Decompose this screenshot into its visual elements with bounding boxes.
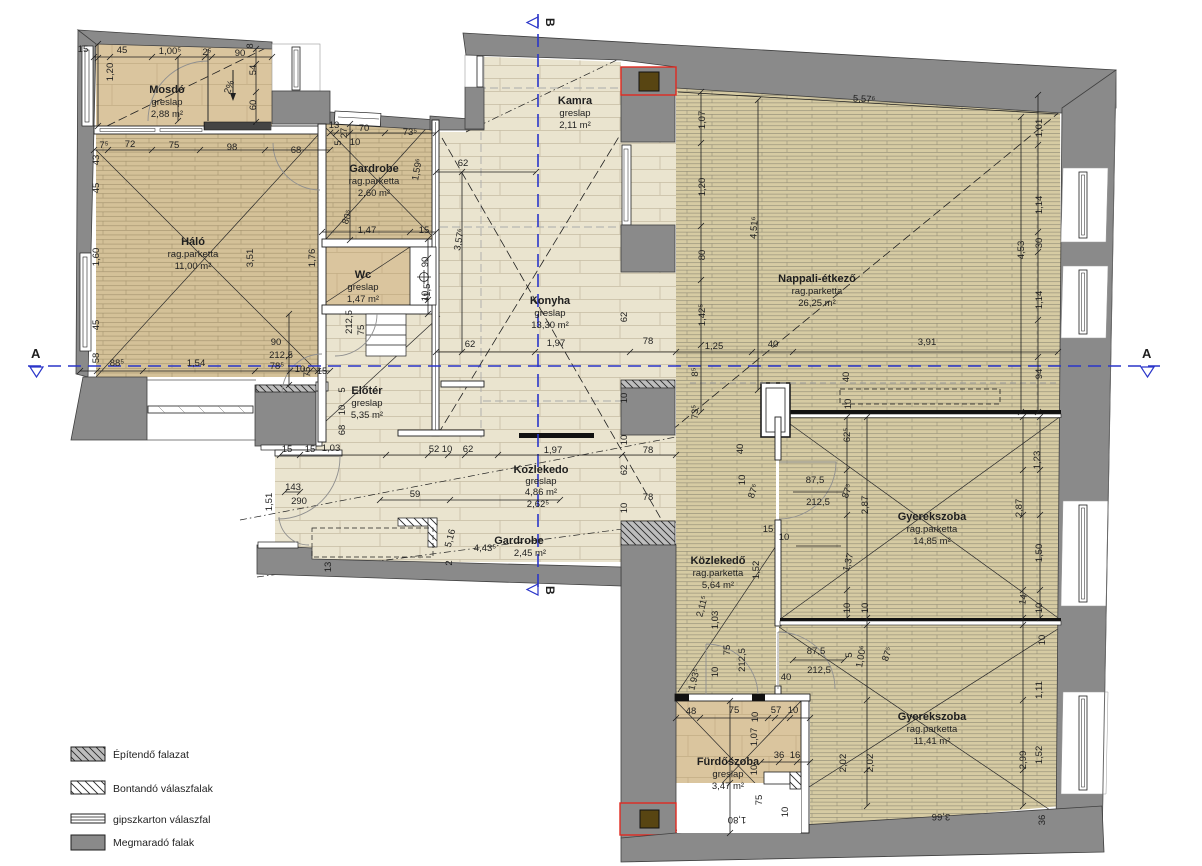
svg-text:3,91: 3,91 (918, 337, 937, 348)
svg-text:70: 70 (359, 123, 370, 134)
svg-text:10: 10 (843, 399, 854, 410)
svg-text:10: 10 (788, 705, 799, 716)
svg-text:Gardrobe: Gardrobe (349, 163, 399, 175)
svg-text:98: 98 (227, 142, 238, 153)
svg-text:Előtér: Előtér (351, 385, 383, 397)
svg-text:15: 15 (419, 225, 430, 236)
svg-text:B: B (543, 586, 557, 595)
svg-text:40: 40 (768, 339, 779, 350)
svg-text:1,51: 1,51 (264, 493, 275, 512)
svg-text:45: 45 (91, 183, 102, 194)
svg-text:Konyha: Konyha (530, 295, 571, 307)
svg-text:87,5: 87,5 (807, 646, 826, 657)
svg-text:62: 62 (458, 158, 469, 169)
svg-text:B: B (543, 18, 557, 27)
svg-text:48: 48 (686, 706, 697, 717)
svg-text:10: 10 (750, 712, 761, 723)
svg-text:rag.parketta: rag.parketta (168, 249, 219, 260)
svg-text:5,64 m²: 5,64 m² (702, 580, 734, 591)
svg-text:1,47 m²: 1,47 m² (347, 294, 379, 305)
svg-text:60: 60 (248, 100, 259, 111)
svg-text:2,02: 2,02 (865, 754, 876, 773)
svg-text:10: 10 (710, 667, 721, 678)
svg-text:2,99: 2,99 (1018, 751, 1029, 770)
svg-text:1,07: 1,07 (697, 111, 708, 130)
svg-text:10: 10 (842, 603, 853, 614)
svg-text:1,25: 1,25 (705, 341, 724, 352)
svg-text:4,43⁵: 4,43⁵ (474, 543, 496, 554)
svg-text:Gyerekszoba: Gyerekszoba (898, 511, 967, 523)
svg-text:212,5: 212,5 (344, 310, 355, 334)
svg-text:1,07: 1,07 (749, 728, 760, 747)
svg-text:2,87: 2,87 (1014, 499, 1025, 518)
svg-text:2,87: 2,87 (860, 496, 871, 515)
svg-text:212,5: 212,5 (807, 665, 831, 676)
svg-text:40: 40 (781, 672, 792, 683)
svg-text:10: 10 (337, 405, 348, 416)
svg-text:1,20: 1,20 (105, 63, 116, 82)
svg-text:1,20: 1,20 (697, 178, 708, 197)
svg-text:5: 5 (844, 652, 855, 657)
svg-text:2⁵: 2⁵ (202, 47, 211, 58)
svg-text:15: 15 (282, 444, 293, 455)
svg-text:4,86 m²: 4,86 m² (525, 487, 557, 498)
svg-text:2: 2 (444, 560, 455, 565)
svg-text:14,85 m²: 14,85 m² (913, 536, 951, 547)
svg-text:2,88 m²: 2,88 m² (151, 109, 183, 120)
svg-text:78: 78 (643, 492, 654, 503)
svg-text:1,80: 1,80 (728, 814, 747, 825)
svg-text:3,47 m²: 3,47 m² (712, 781, 744, 792)
svg-text:75: 75 (356, 325, 367, 336)
svg-text:Bontandó válaszfalak: Bontandó válaszfalak (113, 783, 214, 795)
svg-text:68: 68 (337, 425, 348, 436)
svg-text:15: 15 (763, 524, 774, 535)
svg-text:94: 94 (1034, 369, 1045, 380)
svg-text:36: 36 (774, 750, 785, 761)
svg-text:59: 59 (410, 489, 421, 500)
svg-text:1,14: 1,14 (1034, 196, 1045, 215)
svg-text:36: 36 (1037, 815, 1048, 826)
svg-text:14: 14 (1017, 593, 1030, 605)
svg-text:2,11 m²: 2,11 m² (559, 120, 591, 131)
svg-text:Wc: Wc (355, 269, 372, 281)
svg-text:Kozlekedo: Kozlekedo (513, 464, 568, 476)
svg-text:78: 78 (643, 336, 654, 347)
svg-text:290: 290 (291, 496, 307, 507)
svg-text:8⁵: 8⁵ (690, 367, 701, 376)
svg-text:2,60 m²: 2,60 m² (358, 188, 390, 199)
svg-text:A: A (1142, 346, 1152, 361)
svg-text:73⁵: 73⁵ (690, 405, 701, 420)
svg-text:1,97: 1,97 (547, 338, 566, 349)
svg-text:Nappali-étkező: Nappali-étkező (778, 273, 856, 285)
svg-text:1,03: 1,03 (322, 443, 341, 454)
svg-text:80: 80 (697, 250, 708, 261)
svg-text:1,00⁵: 1,00⁵ (159, 46, 181, 57)
svg-text:greslap: greslap (151, 97, 182, 108)
svg-text:Gyerekszoba: Gyerekszoba (898, 711, 967, 723)
svg-text:Gardrobe: Gardrobe (494, 535, 544, 547)
svg-text:rag.parketta: rag.parketta (693, 568, 744, 579)
svg-text:1,76: 1,76 (307, 249, 318, 268)
svg-text:8: 8 (245, 43, 256, 48)
svg-text:1,23: 1,23 (1032, 451, 1043, 470)
svg-text:90: 90 (235, 48, 246, 59)
svg-text:A: A (31, 346, 41, 361)
svg-text:rag.parketta: rag.parketta (907, 524, 958, 535)
svg-text:13: 13 (329, 120, 340, 131)
svg-text:88⁵: 88⁵ (110, 358, 125, 369)
svg-text:10: 10 (619, 435, 630, 446)
svg-text:5,35 m²: 5,35 m² (351, 410, 383, 421)
svg-text:11,00 m²: 11,00 m² (175, 261, 212, 272)
svg-text:212,5: 212,5 (806, 497, 830, 508)
svg-text:1,14: 1,14 (1034, 291, 1045, 310)
svg-text:10: 10 (619, 503, 630, 514)
svg-text:75: 75 (729, 705, 740, 716)
svg-text:15: 15 (78, 44, 89, 55)
svg-text:5: 5 (333, 140, 344, 145)
svg-text:143: 143 (285, 482, 301, 493)
svg-text:57: 57 (771, 705, 782, 716)
svg-text:10: 10 (350, 137, 361, 148)
svg-text:13,30 m²: 13,30 m² (531, 320, 569, 331)
svg-text:15: 15 (317, 366, 328, 377)
svg-text:greslap: greslap (525, 476, 556, 487)
svg-text:26,25 m²: 26,25 m² (798, 298, 836, 309)
svg-text:1,01: 1,01 (1034, 119, 1045, 138)
svg-text:54: 54 (248, 65, 259, 76)
svg-text:greslap: greslap (534, 308, 565, 319)
svg-text:10: 10 (737, 475, 748, 486)
svg-text:Közlekedő: Közlekedő (690, 555, 745, 567)
svg-text:+1,5: +1,5 (422, 284, 433, 303)
svg-text:75: 75 (169, 140, 180, 151)
svg-text:1,54: 1,54 (187, 358, 206, 369)
svg-text:1,60: 1,60 (91, 248, 102, 267)
svg-text:1,50: 1,50 (1034, 544, 1045, 563)
svg-text:1,97: 1,97 (544, 445, 563, 456)
svg-text:2,62⁵: 2,62⁵ (527, 499, 549, 510)
svg-text:15: 15 (305, 444, 316, 455)
svg-text:75: 75 (722, 645, 733, 656)
svg-text:212,5: 212,5 (269, 350, 293, 361)
svg-text:gipszkarton válaszfal: gipszkarton válaszfal (113, 814, 210, 826)
svg-text:62: 62 (619, 312, 630, 323)
svg-text:1,47: 1,47 (358, 225, 377, 236)
svg-text:Megmaradó falak: Megmaradó falak (113, 837, 195, 849)
svg-text:10: 10 (1037, 635, 1048, 646)
svg-text:13: 13 (323, 562, 334, 573)
svg-text:2,02: 2,02 (838, 754, 849, 773)
svg-text:10: 10 (860, 603, 871, 614)
svg-text:10: 10 (779, 532, 790, 543)
svg-text:5,57⁶: 5,57⁶ (853, 93, 876, 105)
svg-text:72: 72 (125, 139, 136, 150)
svg-text:rag.parketta: rag.parketta (907, 724, 958, 735)
svg-text:10: 10 (1034, 603, 1045, 614)
svg-text:68: 68 (291, 145, 302, 156)
svg-text:90: 90 (271, 337, 282, 348)
svg-text:Háló: Háló (181, 236, 205, 248)
svg-text:10: 10 (295, 364, 306, 375)
svg-text:rag.parketta: rag.parketta (792, 286, 843, 297)
svg-text:1,03: 1,03 (710, 611, 721, 630)
svg-text:10: 10 (780, 807, 791, 818)
svg-text:43: 43 (91, 155, 102, 166)
svg-text:rag.parketta: rag.parketta (349, 176, 400, 187)
svg-text:5: 5 (337, 387, 348, 392)
svg-text:62⁵: 62⁵ (842, 428, 853, 443)
svg-text:Építendő falazat: Építendő falazat (113, 748, 189, 761)
svg-text:4,53: 4,53 (1016, 241, 1027, 260)
svg-text:52: 52 (429, 444, 440, 455)
svg-text:40: 40 (841, 372, 852, 383)
svg-text:greslap: greslap (347, 282, 378, 293)
svg-text:40: 40 (735, 444, 746, 455)
svg-text:62: 62 (465, 339, 476, 350)
svg-text:73⁵: 73⁵ (403, 127, 418, 138)
svg-text:62: 62 (619, 465, 630, 476)
svg-text:1,11: 1,11 (1034, 681, 1045, 699)
svg-text:Fürdőszoba: Fürdőszoba (697, 756, 760, 768)
svg-text:Kamra: Kamra (558, 95, 593, 107)
svg-text:greslap: greslap (712, 769, 743, 780)
svg-text:1,42⁵: 1,42⁵ (697, 304, 708, 326)
svg-text:45: 45 (117, 45, 128, 56)
svg-text:212,5: 212,5 (737, 648, 748, 672)
svg-text:87,5: 87,5 (806, 475, 825, 486)
svg-text:greslap: greslap (351, 398, 382, 409)
svg-text:10: 10 (619, 393, 630, 404)
svg-text:62: 62 (463, 444, 474, 455)
svg-text:2,45 m²: 2,45 m² (514, 548, 546, 559)
svg-text:7⁵: 7⁵ (99, 140, 108, 151)
svg-text:3,66: 3,66 (932, 811, 951, 822)
svg-text:greslap: greslap (559, 108, 590, 119)
svg-text:11,41 m²: 11,41 m² (914, 736, 951, 747)
svg-text:1,52: 1,52 (751, 561, 762, 580)
svg-text:4,51⁶: 4,51⁶ (748, 216, 761, 239)
svg-text:Mosdó: Mosdó (149, 84, 185, 96)
svg-text:16: 16 (790, 750, 801, 761)
svg-text:78⁵: 78⁵ (270, 361, 285, 372)
svg-text:45: 45 (91, 320, 102, 331)
svg-text:27: 27 (339, 128, 350, 139)
svg-text:3,51: 3,51 (245, 249, 256, 268)
svg-text:1,52: 1,52 (1034, 746, 1045, 765)
svg-text:90: 90 (420, 257, 431, 268)
svg-text:78: 78 (643, 445, 654, 456)
svg-text:75: 75 (754, 795, 765, 806)
svg-text:30: 30 (1034, 238, 1045, 249)
svg-text:58: 58 (91, 353, 102, 364)
svg-text:10: 10 (442, 444, 453, 455)
